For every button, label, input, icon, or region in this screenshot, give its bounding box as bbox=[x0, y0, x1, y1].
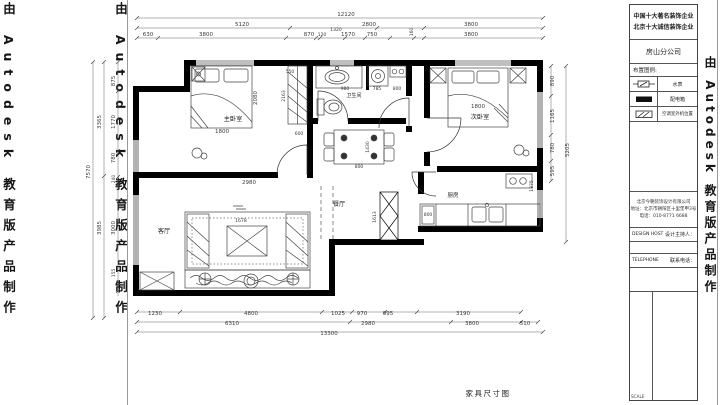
cert-line-2: 北京十大诚信装饰企业 bbox=[633, 22, 693, 33]
dim-label: 1230 bbox=[148, 311, 162, 317]
telephone-label-en: TELEPHONE bbox=[632, 258, 659, 263]
dim-label: 3800 bbox=[199, 32, 213, 38]
dim-label: 5205 bbox=[565, 143, 571, 157]
dim-label: 750 bbox=[367, 32, 378, 38]
dim-label: 630 bbox=[143, 32, 154, 38]
dim-label: 3800 bbox=[464, 32, 478, 38]
dim-label: 595 bbox=[550, 165, 556, 176]
legend-label: 水表 bbox=[658, 77, 697, 91]
title-block-bottom: SCALE bbox=[630, 291, 697, 400]
wall-openings bbox=[133, 60, 543, 265]
dim-label: 510 bbox=[520, 321, 531, 327]
water-heater bbox=[390, 66, 406, 77]
dim-label: 12120 bbox=[337, 12, 355, 18]
dim-label: 995 bbox=[383, 311, 394, 317]
dim-label: 780 bbox=[550, 142, 556, 153]
dim-label: 785 bbox=[373, 86, 382, 92]
company-line: 北京今朝装饰设计有限公司 bbox=[637, 199, 691, 206]
design-host-label-zh: 设计主持人： bbox=[665, 231, 695, 238]
title-block: 中国十大著名装饰企业 北京十大诚信装饰企业 房山分公司 布置图例: 水表 配电箱… bbox=[629, 4, 698, 401]
dim-label: 240 bbox=[111, 175, 117, 184]
room-label-living: 客厅 bbox=[158, 227, 170, 235]
design-host-field: DESIGN HOST 设计主持人： bbox=[630, 227, 697, 241]
dim-label: 5120 bbox=[235, 22, 249, 28]
bedroom1-door-arc bbox=[277, 145, 307, 175]
dim-label: 1613 bbox=[372, 211, 378, 223]
dim-label: 550 bbox=[286, 69, 295, 75]
distribution-box-icon bbox=[630, 92, 658, 106]
company-certifications: 中国十大著名装饰企业 北京十大诚信装饰企业 bbox=[630, 5, 697, 39]
dim-label: 1570 bbox=[341, 32, 355, 38]
living-room-furniture bbox=[185, 206, 310, 288]
dim-label: 4800 bbox=[244, 311, 258, 317]
walls bbox=[133, 60, 543, 296]
dim-label: 3985 bbox=[97, 221, 103, 235]
dim-label: 3800 bbox=[464, 22, 478, 28]
window-lines bbox=[134, 61, 542, 265]
dim-label: 970 bbox=[357, 311, 368, 317]
legend-label: 配电箱 bbox=[658, 92, 697, 106]
floor-plan: 12120 5120 2800 3800 630 3800 870 120 13… bbox=[0, 0, 720, 405]
dim-label: 1025 bbox=[331, 311, 345, 317]
branch-name: 房山分公司 bbox=[630, 39, 697, 63]
dim-label: 2980 bbox=[242, 180, 256, 186]
dim-label: 1800 bbox=[215, 129, 229, 135]
room-label-kitchen: 厨房 bbox=[447, 191, 459, 199]
dim-label: 160 bbox=[409, 28, 415, 37]
dim-label: 780 bbox=[111, 152, 117, 163]
title-block-bottom-box bbox=[652, 292, 697, 400]
scale-cell: SCALE bbox=[630, 292, 652, 400]
legend-label: 空调室外机位置 bbox=[658, 107, 697, 121]
scale-label: SCALE bbox=[631, 394, 644, 399]
dim-label: 1770 bbox=[111, 115, 117, 129]
drawing-title: 家具尺寸图 bbox=[452, 388, 524, 399]
dim-label: 600 bbox=[295, 131, 304, 137]
legend-title: 布置图例: bbox=[630, 63, 697, 76]
title-block-spacer bbox=[630, 241, 697, 253]
washing-machine bbox=[368, 66, 388, 86]
room-label-bathroom: 卫生间 bbox=[346, 92, 361, 99]
dim-label: 1678 bbox=[235, 218, 247, 224]
dim-label: 800 bbox=[355, 164, 364, 170]
dim-label: 1375 bbox=[529, 180, 535, 192]
ac-symbol-master bbox=[192, 148, 207, 159]
dim-label: 1165 bbox=[550, 109, 556, 123]
telephone-field: TELEPHONE 联系电话： bbox=[630, 253, 697, 267]
design-host-label-en: DESIGN HOST bbox=[632, 232, 663, 237]
dim-label: 7570 bbox=[86, 165, 92, 179]
dim-label: 3190 bbox=[456, 311, 470, 317]
dim-label: 13300 bbox=[320, 331, 338, 337]
dim-label: 800 bbox=[424, 212, 433, 218]
toilet bbox=[317, 99, 342, 115]
legend-row-distribution-box: 配电箱 bbox=[630, 91, 697, 106]
room-divider-dashed bbox=[321, 186, 333, 242]
company-line: 地址：北京市朝阳区十里堡甲3号 bbox=[631, 206, 697, 213]
bedroom2-door-arc bbox=[427, 118, 461, 152]
water-meter-icon bbox=[630, 77, 658, 91]
dining-table bbox=[324, 130, 394, 164]
company-info: 北京今朝装饰设计有限公司 地址：北京市朝阳区十里堡甲3号 电话：010-8771… bbox=[630, 191, 697, 227]
dim-label: 2980 bbox=[361, 321, 375, 327]
drawing-sheet: 由 Autodesk 教育版产品制作 由 Autodesk 教育版产品制作 由 … bbox=[0, 0, 720, 405]
dim-label: 155 bbox=[111, 269, 117, 278]
washbasin bbox=[316, 66, 362, 88]
telephone-label-zh: 联系电话： bbox=[670, 257, 695, 264]
cert-line-1: 中国十大著名装饰企业 bbox=[633, 11, 693, 22]
title-block-spacer bbox=[630, 267, 697, 291]
dim-label: 980 bbox=[341, 86, 350, 92]
dim-label: 800 bbox=[393, 86, 402, 92]
nightstand-left bbox=[430, 68, 446, 83]
dim-label: 875 bbox=[111, 75, 117, 86]
room-label-second-bedroom: 次卧室 bbox=[471, 113, 490, 121]
dim-label: 120 bbox=[318, 32, 327, 38]
room-label-dining: 餐厅 bbox=[333, 200, 345, 208]
bathroom-door-arc bbox=[318, 91, 348, 121]
dim-label: 3365 bbox=[97, 115, 103, 129]
company-line: 电话：010-8771 6688 bbox=[639, 213, 687, 220]
dim-label: 870 bbox=[304, 32, 315, 38]
dim-label: 3800 bbox=[465, 321, 479, 327]
dim-label: 1430 bbox=[365, 141, 371, 153]
dim-label: 2080 bbox=[253, 91, 259, 105]
bay-window-box bbox=[140, 272, 174, 290]
kitchen-sink bbox=[472, 203, 503, 222]
dim-label: 890 bbox=[550, 75, 556, 86]
ac-symbol-second bbox=[514, 145, 529, 156]
room-label-master-bedroom: 主卧室 bbox=[224, 115, 243, 123]
legend-row-water-meter: 水表 bbox=[630, 76, 697, 91]
ac-outdoor-unit-icon bbox=[630, 107, 658, 121]
legend-row-ac-outdoor-unit: 空调室外机位置 bbox=[630, 106, 697, 121]
nightstand-right bbox=[510, 68, 526, 83]
dim-label: 1800 bbox=[471, 104, 485, 110]
title-block-empty-section bbox=[630, 121, 697, 191]
dim-label: 2163 bbox=[281, 90, 287, 102]
shaft-hatched bbox=[380, 192, 398, 240]
dim-label: 3000 bbox=[111, 221, 117, 235]
dim-label: 2800 bbox=[362, 22, 376, 28]
dim-label: 6310 bbox=[225, 321, 239, 327]
stove bbox=[506, 174, 532, 188]
